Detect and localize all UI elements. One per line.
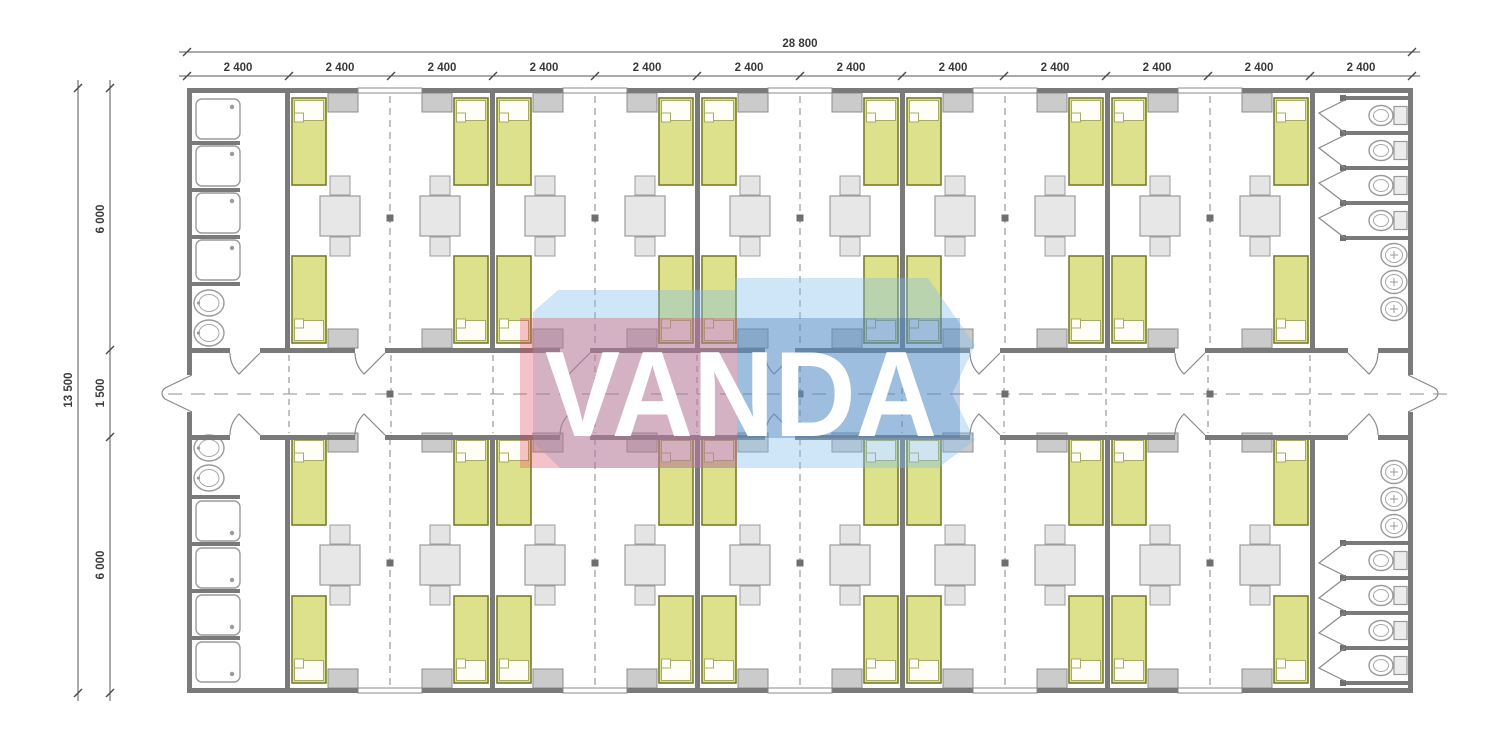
watermark-text: VANDA	[545, 326, 937, 462]
dim-segment: 2 400	[326, 62, 355, 74]
dim-segment: 2 400	[428, 62, 457, 74]
washroom-top-left	[192, 99, 240, 346]
rooms-bottom-row	[292, 433, 1308, 688]
dim-segment: 2 400	[837, 62, 866, 74]
dimension-left: 13 500 6 000 1 500 6 000	[63, 80, 114, 701]
watermark-logo: VANDA	[520, 278, 975, 468]
room-module	[292, 93, 488, 348]
dim-segment: 6 000	[95, 551, 107, 580]
washroom-bottom-left	[192, 435, 240, 682]
room-module	[292, 433, 488, 688]
dimension-top: 28 800 2 400 2 400 2 400 2 400 2 400 2 4…	[179, 38, 1420, 80]
dim-segment: 2 400	[1245, 62, 1274, 74]
dim-segment: 2 400	[224, 62, 253, 74]
dim-segment: 2 400	[735, 62, 764, 74]
room-module	[1112, 433, 1308, 688]
dim-segment: 2 400	[530, 62, 559, 74]
dim-segment: 6 000	[95, 205, 107, 234]
toilet-room-top-right	[1319, 95, 1408, 321]
room-module	[497, 433, 693, 688]
room-module	[702, 433, 898, 688]
dim-segment: 2 400	[1041, 62, 1070, 74]
dim-total-height: 13 500	[63, 372, 75, 407]
dim-total-width: 28 800	[782, 38, 817, 50]
room-module	[1112, 93, 1308, 348]
dim-segment: 1 500	[95, 379, 107, 408]
room-module	[907, 433, 1103, 688]
dim-segment: 2 400	[939, 62, 968, 74]
floor-plan-canvas: 28 800 2 400 2 400 2 400 2 400 2 400 2 4…	[0, 0, 1500, 736]
dim-segment: 2 400	[1347, 62, 1376, 74]
toilet-room-bottom-right	[1319, 461, 1408, 687]
dim-segment: 2 400	[633, 62, 662, 74]
dim-segment: 2 400	[1143, 62, 1172, 74]
floor-plan-page: 28 800 2 400 2 400 2 400 2 400 2 400 2 4…	[0, 0, 1500, 736]
